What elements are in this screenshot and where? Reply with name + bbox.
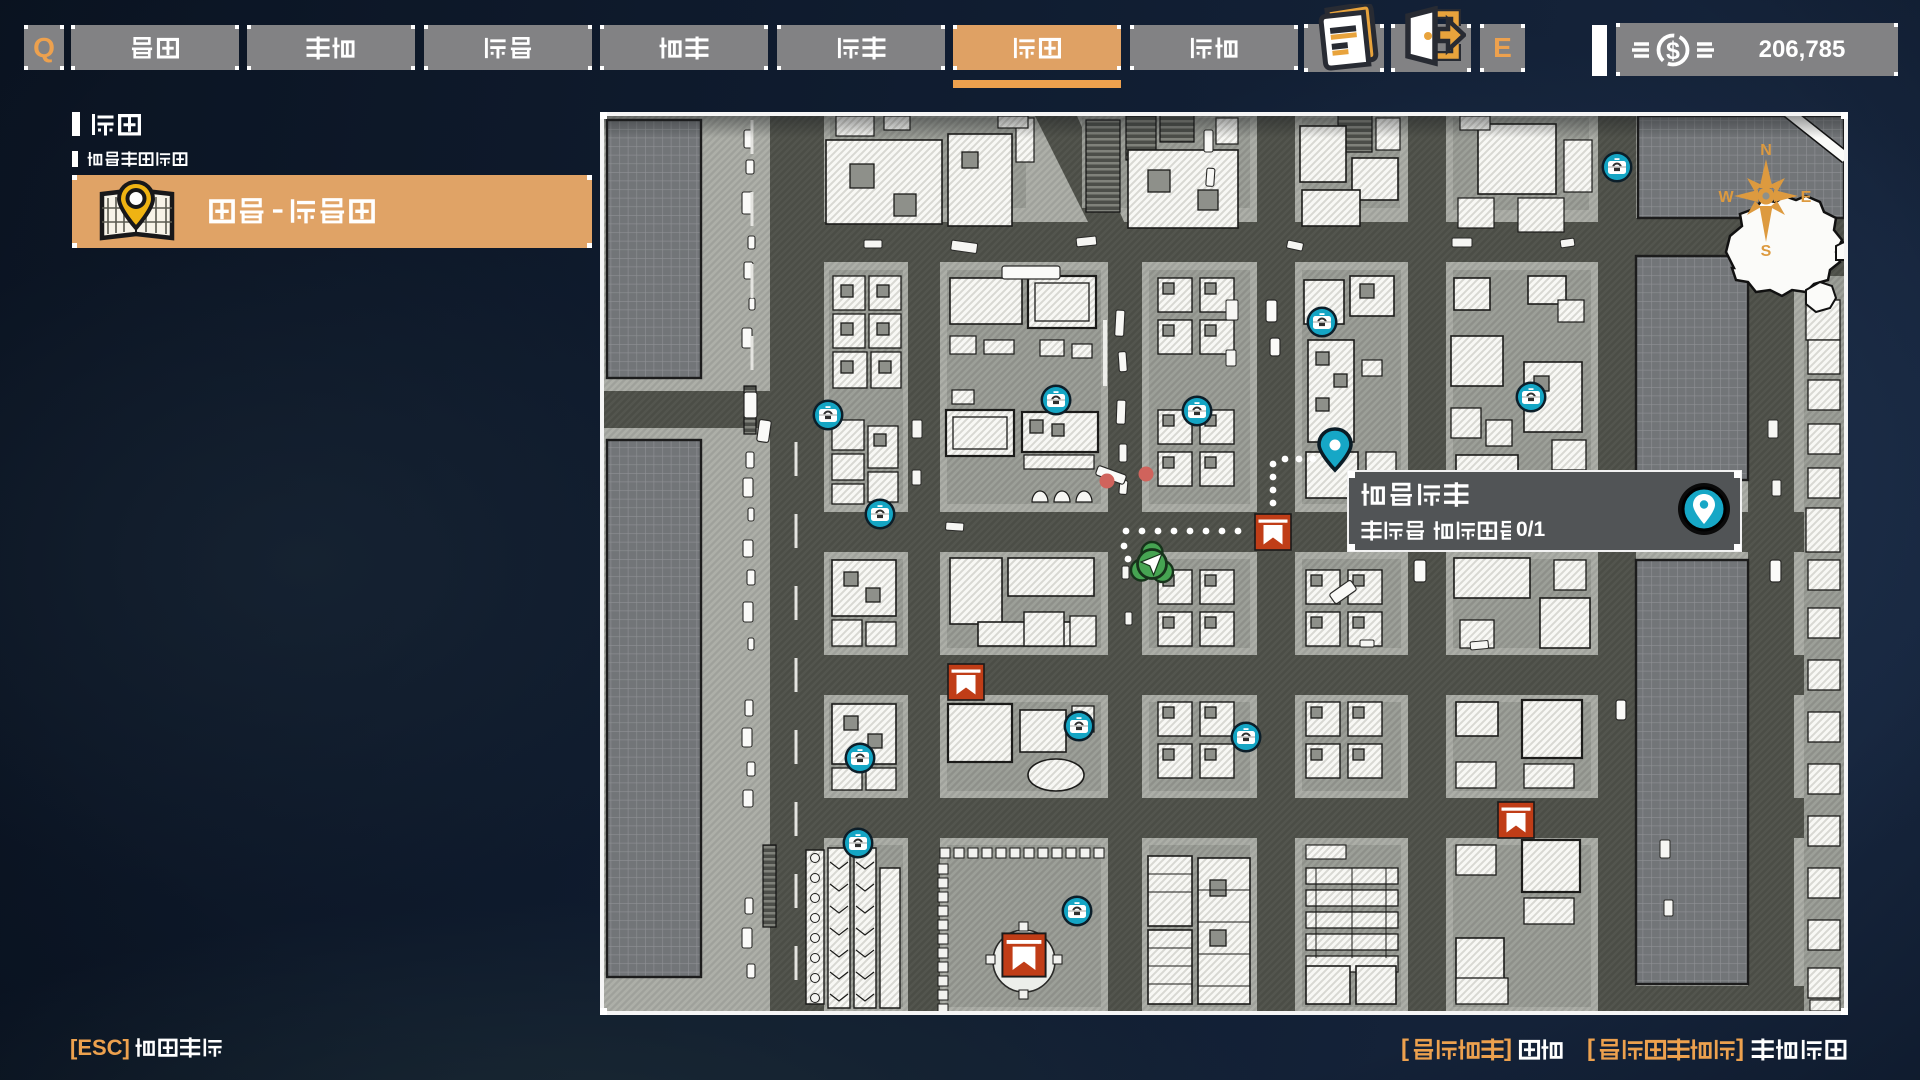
svg-text:N: N (1760, 142, 1772, 159)
svg-text:E: E (1801, 189, 1812, 206)
svg-text:W: W (1718, 189, 1734, 206)
svg-text:S: S (1761, 243, 1772, 260)
svg-text:$: $ (1666, 37, 1680, 65)
